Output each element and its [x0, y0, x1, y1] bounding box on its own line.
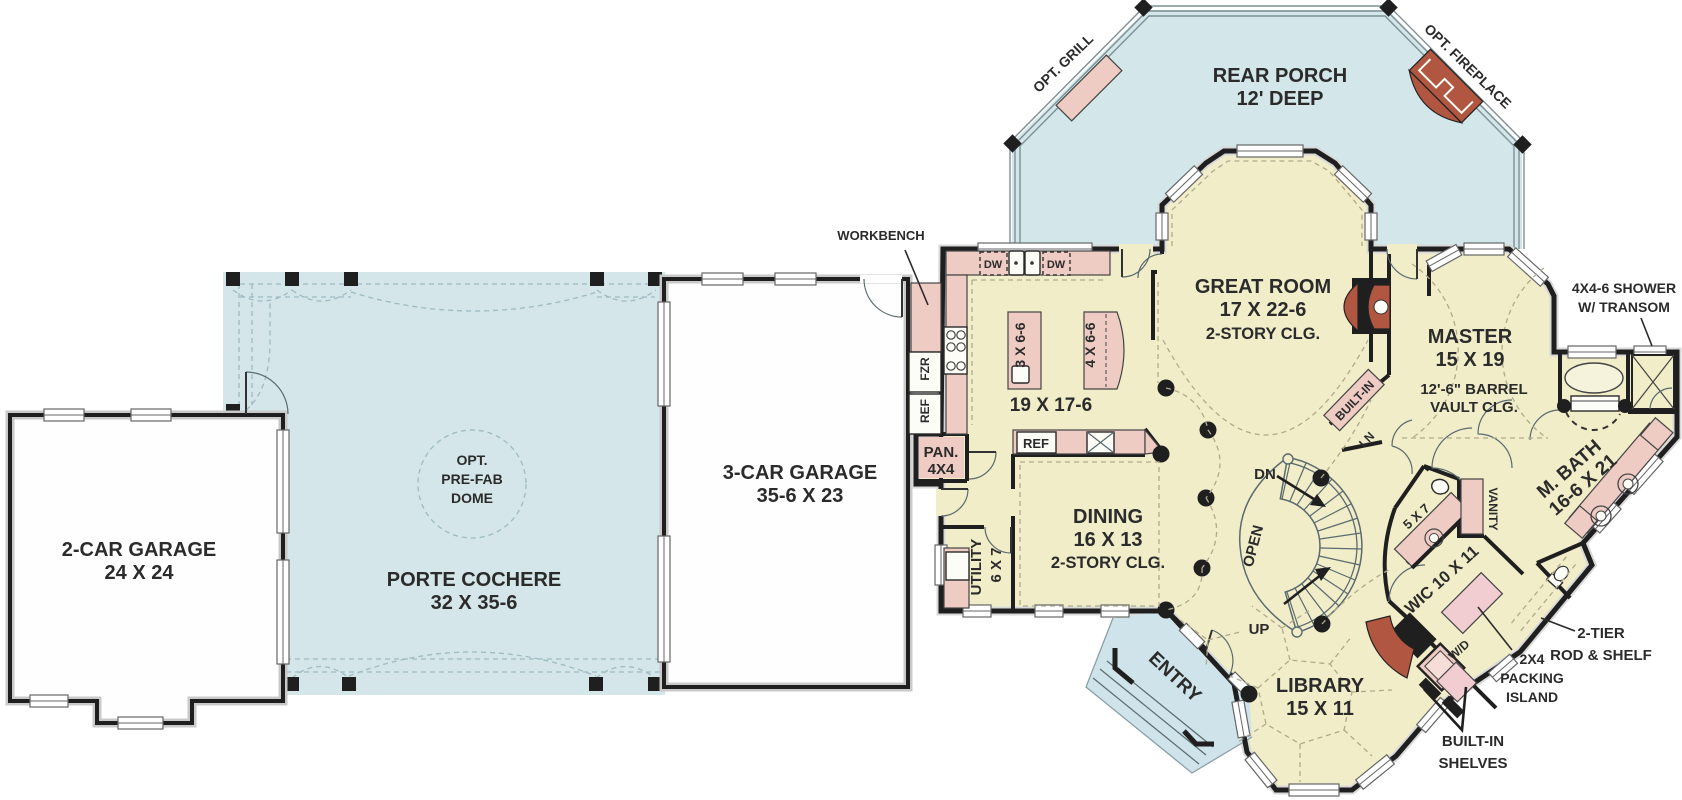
svg-text:OPT.: OPT.	[456, 452, 487, 468]
svg-text:6 X 7: 6 X 7	[988, 547, 1005, 582]
svg-text:2-STORY CLG.: 2-STORY CLG.	[1051, 554, 1165, 572]
svg-text:17 X 22-6: 17 X 22-6	[1220, 299, 1307, 321]
svg-text:ROD & SHELF: ROD & SHELF	[1550, 647, 1652, 664]
svg-text:4 X 6-6: 4 X 6-6	[1082, 322, 1098, 367]
svg-text:35-6 X 23: 35-6 X 23	[757, 485, 844, 507]
svg-text:PORTE COCHERE: PORTE COCHERE	[387, 569, 561, 591]
svg-text:4X4: 4X4	[928, 461, 955, 478]
svg-text:16 X 13: 16 X 13	[1074, 529, 1143, 551]
svg-text:WORKBENCH: WORKBENCH	[837, 228, 924, 243]
svg-text:15 X 11: 15 X 11	[1286, 698, 1354, 720]
svg-text:DW: DW	[1047, 259, 1066, 271]
svg-text:VAULT CLG.: VAULT CLG.	[1430, 399, 1518, 416]
svg-text:ISLAND: ISLAND	[1506, 689, 1558, 705]
svg-text:REAR PORCH: REAR PORCH	[1213, 65, 1347, 87]
svg-text:FZR: FZR	[918, 357, 932, 381]
svg-text:PAN.: PAN.	[924, 444, 959, 461]
svg-text:SHELVES: SHELVES	[1439, 755, 1508, 772]
svg-text:DINING: DINING	[1073, 506, 1143, 528]
svg-text:2X4: 2X4	[1520, 651, 1545, 667]
svg-text:3-CAR GARAGE: 3-CAR GARAGE	[723, 462, 877, 484]
svg-text:UP: UP	[1249, 621, 1270, 638]
svg-text:4X4-6 SHOWER: 4X4-6 SHOWER	[1572, 280, 1676, 296]
svg-text:REF: REF	[1023, 436, 1049, 451]
svg-text:LIBRARY: LIBRARY	[1276, 675, 1365, 697]
svg-text:24 X 24: 24 X 24	[105, 562, 175, 584]
svg-text:DN: DN	[1254, 466, 1276, 483]
svg-text:VANITY: VANITY	[1486, 487, 1500, 530]
svg-text:W/ TRANSOM: W/ TRANSOM	[1578, 299, 1670, 315]
svg-text:MASTER: MASTER	[1428, 326, 1513, 348]
svg-text:GREAT ROOM: GREAT ROOM	[1195, 276, 1331, 298]
svg-text:3 X 6-6: 3 X 6-6	[1012, 322, 1028, 367]
svg-text:BUILT-IN: BUILT-IN	[1442, 733, 1504, 750]
svg-text:12'-6" BARREL: 12'-6" BARREL	[1420, 381, 1527, 398]
svg-text:DW: DW	[984, 259, 1003, 271]
svg-text:19 X 17-6: 19 X 17-6	[1010, 395, 1092, 416]
svg-text:32 X 35-6: 32 X 35-6	[431, 592, 518, 614]
svg-text:2-STORY CLG.: 2-STORY CLG.	[1206, 325, 1320, 343]
svg-text:15 X 19: 15 X 19	[1436, 349, 1505, 371]
svg-text:PACKING: PACKING	[1500, 670, 1564, 686]
svg-text:PRE-FAB: PRE-FAB	[441, 471, 502, 487]
svg-text:REF: REF	[918, 399, 932, 423]
svg-text:12' DEEP: 12' DEEP	[1236, 88, 1323, 110]
svg-text:UTILITY: UTILITY	[968, 539, 985, 596]
svg-text:DOME: DOME	[451, 490, 493, 506]
svg-text:2-TIER: 2-TIER	[1577, 625, 1625, 642]
svg-text:2-CAR GARAGE: 2-CAR GARAGE	[62, 539, 216, 561]
